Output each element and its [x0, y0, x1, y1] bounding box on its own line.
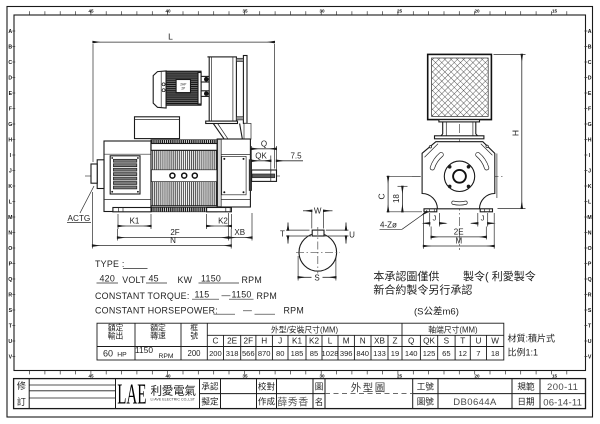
svg-text:M: M: [343, 337, 350, 346]
svg-text:R: R: [588, 292, 592, 298]
svg-text:2P: 2P: [181, 87, 185, 91]
svg-text:U: U: [349, 230, 355, 239]
svg-text:B: B: [8, 44, 12, 50]
svg-text:20: 20: [474, 9, 480, 14]
svg-text:Q: Q: [588, 277, 592, 283]
svg-text:A: A: [588, 29, 592, 35]
svg-text:RPM: RPM: [242, 275, 262, 285]
svg-text:566: 566: [242, 349, 255, 358]
svg-text:200: 200: [187, 349, 201, 358]
svg-text:2F: 2F: [244, 337, 254, 346]
svg-text:F: F: [588, 106, 591, 112]
svg-text:40: 40: [165, 9, 171, 14]
svg-text:規範: 規範: [517, 380, 535, 391]
svg-text:QK: QK: [423, 337, 435, 346]
svg-text:S: S: [314, 274, 319, 283]
svg-text:CONSTANT HORSEPOWER:: CONSTANT HORSEPOWER:: [95, 306, 218, 316]
svg-text:名: 名: [315, 396, 324, 407]
svg-text:工號: 工號: [417, 380, 435, 391]
svg-text:VOLT: VOLT: [122, 275, 146, 285]
svg-text:XB: XB: [374, 337, 385, 346]
svg-text:65: 65: [442, 349, 450, 358]
svg-text:2E: 2E: [227, 337, 238, 346]
svg-text:870: 870: [258, 349, 271, 358]
svg-text:本承認圖僅供: 本承認圖僅供: [373, 269, 439, 283]
svg-text:1150: 1150: [232, 290, 252, 300]
svg-text:V: V: [588, 354, 592, 360]
svg-text:KW: KW: [178, 275, 193, 285]
svg-text:45: 45: [88, 373, 94, 378]
svg-text:XB: XB: [234, 228, 245, 237]
svg-text:S: S: [444, 337, 450, 346]
svg-text:C: C: [376, 193, 386, 199]
svg-text:U: U: [475, 337, 481, 346]
svg-text:訂: 訂: [17, 396, 26, 407]
svg-text:U: U: [588, 339, 592, 345]
svg-text:115: 115: [195, 290, 210, 300]
svg-text:號: 號: [190, 331, 198, 341]
svg-text:30: 30: [319, 9, 325, 14]
svg-text:K: K: [8, 184, 12, 190]
svg-text:O: O: [588, 246, 592, 252]
svg-text:7: 7: [476, 349, 480, 358]
svg-text:D: D: [588, 75, 592, 81]
svg-text:RPM: RPM: [257, 291, 277, 301]
svg-text:E: E: [588, 91, 592, 97]
svg-text:45: 45: [149, 274, 159, 284]
svg-text:M: M: [587, 215, 591, 221]
svg-text:T: T: [460, 337, 465, 346]
svg-text:輸出: 輸出: [108, 331, 124, 341]
svg-text:125: 125: [423, 349, 436, 358]
svg-text:轉速: 轉速: [150, 331, 166, 341]
svg-text:25: 25: [397, 373, 403, 378]
svg-text:製令( 利愛製令: 製令( 利愛製令: [463, 269, 536, 283]
svg-text:C: C: [588, 60, 592, 66]
svg-text:Z: Z: [392, 337, 397, 346]
svg-text:N: N: [588, 230, 592, 236]
svg-text:L: L: [168, 31, 173, 41]
svg-text:12: 12: [458, 349, 466, 358]
svg-text:C: C: [8, 60, 12, 66]
svg-text:RPM: RPM: [284, 306, 304, 316]
svg-text:Q: Q: [8, 277, 12, 283]
svg-text:校對: 校對: [258, 380, 276, 391]
svg-text:20: 20: [474, 373, 480, 378]
svg-text:W: W: [491, 337, 499, 346]
svg-text:N: N: [8, 230, 12, 236]
svg-text:QK: QK: [255, 152, 267, 161]
svg-text:承認: 承認: [201, 380, 219, 391]
svg-text:200-11: 200-11: [547, 382, 578, 393]
svg-text:材質:積片式: 材質:積片式: [508, 332, 556, 343]
svg-text:(S公差m6): (S公差m6): [414, 305, 459, 317]
svg-text:2E: 2E: [454, 227, 464, 236]
svg-text:85: 85: [310, 349, 318, 358]
svg-text:H: H: [588, 137, 592, 143]
svg-text:R: R: [8, 292, 12, 298]
svg-text:P: P: [588, 261, 592, 267]
svg-text:M: M: [455, 236, 462, 245]
svg-text:日期: 日期: [517, 397, 534, 407]
svg-text:200: 200: [209, 349, 222, 358]
svg-text:外型圖: 外型圖: [351, 381, 387, 394]
svg-text:J: J: [588, 168, 591, 174]
svg-text:T: T: [280, 229, 285, 238]
svg-text:L: L: [328, 337, 333, 346]
svg-text:TYPE :: TYPE :: [95, 259, 125, 269]
svg-text:U: U: [8, 339, 12, 345]
svg-text:J: J: [481, 214, 485, 223]
svg-text:18: 18: [392, 194, 401, 203]
svg-text:圖號: 圖號: [417, 396, 435, 407]
svg-text:S: S: [9, 308, 13, 314]
svg-text:40: 40: [165, 373, 171, 378]
svg-text:LAE: LAE: [117, 377, 146, 410]
svg-text:K1: K1: [292, 337, 302, 346]
svg-text:80: 80: [276, 349, 284, 358]
svg-text:H: H: [261, 337, 267, 346]
svg-text:—: —: [243, 305, 252, 315]
svg-text:06-14-11: 06-14-11: [543, 397, 582, 408]
svg-text:—: —: [222, 290, 231, 300]
svg-text:1150: 1150: [201, 274, 221, 284]
svg-text:O: O: [8, 246, 12, 252]
svg-text:H: H: [511, 130, 521, 136]
svg-text:新合約製令另行承認: 新合約製令另行承認: [373, 283, 472, 297]
svg-text:HP: HP: [117, 351, 127, 358]
svg-text:15: 15: [552, 373, 558, 378]
svg-text:1028: 1028: [322, 349, 339, 358]
svg-text:外型/安裝尺寸(MM): 外型/安裝尺寸(MM): [271, 324, 339, 334]
svg-text:420: 420: [100, 274, 116, 284]
svg-text:LI AVE ELECTRIC CO.,LST: LI AVE ELECTRIC CO.,LST: [151, 398, 196, 402]
svg-text:J: J: [433, 214, 437, 223]
svg-text:133: 133: [373, 349, 386, 358]
svg-text:396: 396: [340, 349, 353, 358]
svg-text:E: E: [9, 91, 13, 97]
svg-text:B: B: [588, 44, 592, 50]
svg-text:RPM: RPM: [158, 353, 173, 360]
svg-text:CONSTANT TORQUE:: CONSTANT TORQUE:: [95, 291, 190, 301]
svg-text:A: A: [8, 29, 12, 35]
svg-text:C: C: [212, 337, 218, 346]
svg-text:G: G: [588, 122, 592, 128]
svg-text:30: 30: [319, 373, 325, 378]
svg-text:J: J: [278, 337, 282, 346]
svg-text:35: 35: [242, 9, 248, 14]
svg-text:19: 19: [391, 349, 399, 358]
svg-text:ACTG: ACTG: [68, 214, 91, 223]
svg-text:7.5: 7.5: [290, 151, 302, 160]
svg-text:4-Zø: 4-Zø: [380, 221, 397, 230]
svg-text:60: 60: [103, 348, 113, 358]
svg-text:35: 35: [242, 373, 248, 378]
svg-text:Q: Q: [408, 337, 414, 346]
svg-text:25: 25: [397, 9, 403, 14]
svg-text:軸端尺寸(MM): 軸端尺寸(MM): [428, 324, 478, 334]
svg-text:G: G: [8, 122, 12, 128]
svg-text:S: S: [588, 308, 592, 314]
svg-text:V: V: [9, 354, 13, 360]
svg-text:840: 840: [356, 349, 369, 358]
svg-text:薛秀香: 薛秀香: [277, 396, 309, 408]
svg-text:N: N: [170, 236, 176, 245]
svg-text:J: J: [9, 168, 12, 174]
svg-text:W: W: [314, 207, 322, 216]
svg-text:140: 140: [405, 349, 418, 358]
svg-text:F: F: [9, 106, 12, 112]
svg-text:185: 185: [291, 349, 304, 358]
svg-text:H: H: [8, 137, 12, 143]
svg-text:作成: 作成: [258, 396, 276, 407]
svg-text:318: 318: [226, 349, 239, 358]
svg-text:修: 修: [17, 380, 26, 391]
svg-text:18: 18: [491, 349, 499, 358]
svg-text:M: M: [8, 215, 12, 221]
svg-text:N: N: [360, 337, 366, 346]
svg-text:15: 15: [552, 9, 558, 14]
svg-text:K2: K2: [309, 337, 319, 346]
svg-text:圖: 圖: [315, 381, 324, 391]
svg-text:比例1:1: 比例1:1: [508, 346, 539, 357]
svg-text:K1: K1: [130, 217, 140, 226]
svg-text:1150: 1150: [135, 345, 153, 355]
svg-text:擬定: 擬定: [201, 396, 219, 407]
svg-text:Q: Q: [261, 140, 267, 149]
svg-text:D: D: [8, 75, 12, 81]
svg-text:K2: K2: [218, 217, 228, 226]
svg-text:K: K: [588, 184, 592, 190]
svg-text:P: P: [9, 261, 13, 267]
svg-text:45: 45: [88, 9, 94, 14]
svg-text:利愛電氣: 利愛電氣: [151, 383, 197, 397]
svg-text:DB0644A: DB0644A: [453, 397, 497, 408]
